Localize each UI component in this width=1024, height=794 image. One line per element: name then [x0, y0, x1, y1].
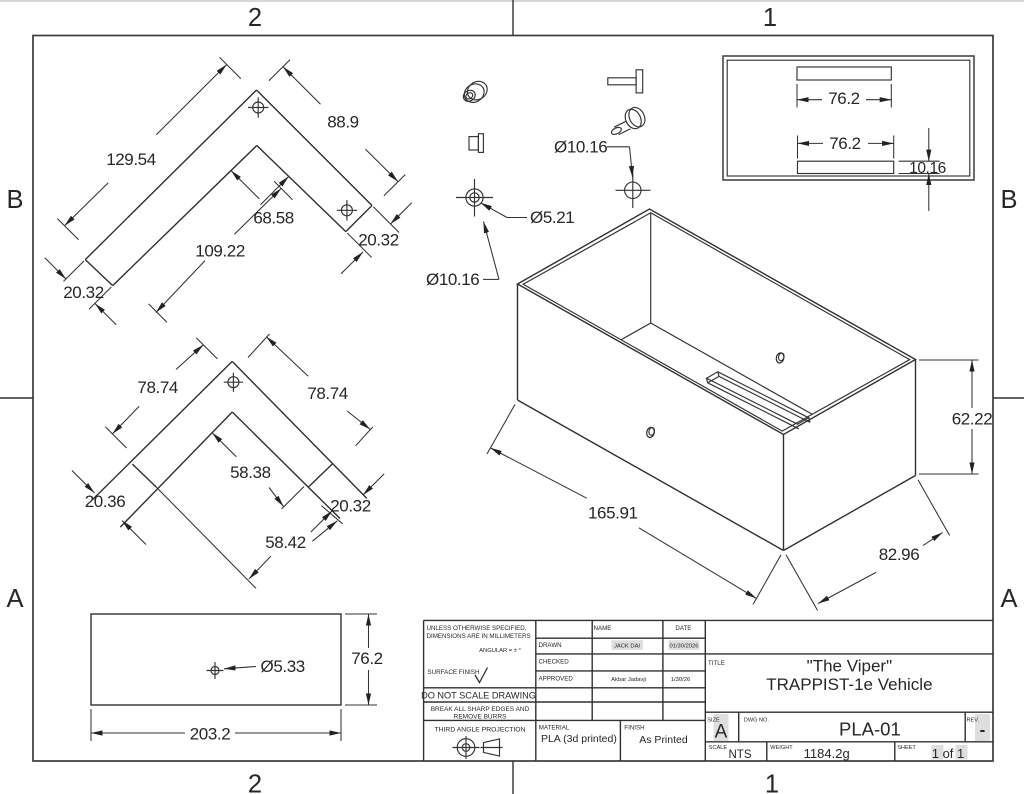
svg-text:WEIGHT: WEIGHT: [770, 745, 793, 751]
svg-text:01/30/2026: 01/30/2026: [669, 643, 698, 649]
svg-text:Ø10.16: Ø10.16: [426, 270, 479, 289]
svg-text:1: 1: [763, 4, 777, 32]
svg-text:BREAK ALL SHARP EDGES AND: BREAK ALL SHARP EDGES AND: [431, 706, 530, 713]
svg-text:DWG NO.: DWG NO.: [744, 718, 770, 724]
svg-text:THIRD ANGLE PROJECTION: THIRD ANGLE PROJECTION: [434, 727, 525, 734]
svg-text:FINISH: FINISH: [624, 724, 644, 731]
svg-text:20.36: 20.36: [85, 492, 126, 511]
svg-text:20.32: 20.32: [358, 231, 399, 250]
svg-text:CHECKED: CHECKED: [539, 659, 570, 666]
svg-text:A: A: [6, 585, 23, 613]
svg-text:DIMENSIONS ARE IN MILLIMETERS: DIMENSIONS ARE IN MILLIMETERS: [427, 633, 531, 640]
svg-text:DRAWN: DRAWN: [539, 642, 562, 649]
svg-text:DATE: DATE: [675, 625, 691, 632]
svg-text:SHEET: SHEET: [897, 745, 916, 751]
svg-text:NTS: NTS: [729, 749, 752, 761]
svg-text:2: 2: [248, 771, 262, 794]
svg-text:Ø5.33: Ø5.33: [261, 657, 305, 676]
svg-text:SURFACE FINISH: SURFACE FINISH: [427, 669, 480, 676]
svg-text:"The Viper": "The Viper": [807, 657, 892, 676]
svg-text:TRAPPIST-1e Vehicle: TRAPPIST-1e Vehicle: [766, 675, 932, 694]
svg-text:129.54: 129.54: [106, 150, 156, 169]
svg-text:62.22: 62.22: [952, 409, 993, 428]
svg-text:1: 1: [765, 771, 779, 794]
svg-text:APPROVED: APPROVED: [539, 676, 574, 683]
svg-text:76.2: 76.2: [351, 649, 383, 668]
svg-text:-: -: [980, 721, 986, 740]
svg-text:1/30/26: 1/30/26: [671, 677, 690, 683]
svg-text:B: B: [1000, 186, 1017, 214]
svg-text:SCALE: SCALE: [709, 745, 728, 751]
svg-text:165.91: 165.91: [588, 503, 638, 522]
svg-text:76.2: 76.2: [829, 134, 861, 153]
svg-text:REV.: REV.: [967, 718, 980, 724]
svg-text:PLA (3d printed): PLA (3d printed): [541, 733, 617, 745]
svg-text:109.22: 109.22: [195, 241, 245, 260]
svg-text:A: A: [715, 722, 728, 743]
svg-text:203.2: 203.2: [190, 724, 231, 743]
svg-text:2: 2: [248, 4, 262, 32]
svg-text:NAME: NAME: [594, 625, 612, 632]
svg-text:UNLESS OTHERWISE SPECIFIED,: UNLESS OTHERWISE SPECIFIED,: [427, 625, 527, 632]
svg-text:A: A: [1000, 585, 1017, 613]
svg-text:82.96: 82.96: [879, 545, 920, 564]
svg-text:10.16: 10.16: [909, 160, 946, 177]
svg-text:TITLE: TITLE: [708, 660, 725, 667]
svg-text:Ø10.16: Ø10.16: [554, 137, 607, 156]
svg-text:20.32: 20.32: [330, 497, 371, 516]
svg-text:1184.2g: 1184.2g: [804, 746, 850, 761]
svg-text:Ø5.21: Ø5.21: [530, 208, 574, 227]
svg-text:REMOVE BURRS: REMOVE BURRS: [454, 714, 507, 721]
svg-text:DO NOT SCALE DRAWING: DO NOT SCALE DRAWING: [421, 691, 536, 701]
svg-text:58.42: 58.42: [265, 533, 306, 552]
svg-text:As Printed: As Printed: [639, 734, 688, 746]
svg-text:JACK DAI: JACK DAI: [614, 643, 640, 649]
svg-text:1 of 1: 1 of 1: [932, 746, 965, 761]
svg-text:78.74: 78.74: [307, 384, 348, 403]
svg-text:58.38: 58.38: [230, 463, 271, 482]
svg-text:PLA-01: PLA-01: [839, 719, 901, 740]
svg-text:88.9: 88.9: [327, 112, 359, 131]
svg-text:78.74: 78.74: [137, 378, 178, 397]
svg-text:MATERIAL: MATERIAL: [539, 724, 570, 731]
svg-text:20.32: 20.32: [63, 283, 104, 302]
svg-text:76.2: 76.2: [828, 89, 860, 108]
svg-text:Akbar Jadavji: Akbar Jadavji: [611, 677, 646, 683]
svg-text:ANGULAR = ± °: ANGULAR = ± °: [479, 648, 521, 654]
svg-text:68.58: 68.58: [253, 209, 294, 228]
svg-text:B: B: [6, 186, 23, 214]
